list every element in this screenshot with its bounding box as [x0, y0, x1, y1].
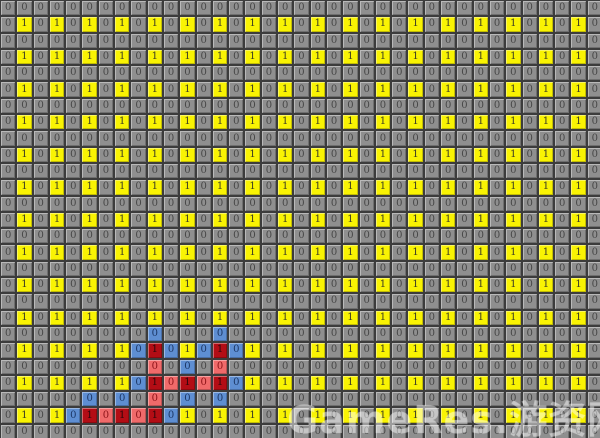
grid-cell-yellow-one[interactable]: 1 [49, 407, 65, 423]
grid-cell-yellow-one[interactable]: 1 [114, 244, 130, 260]
grid-cell-gray-zero[interactable]: 0 [212, 163, 228, 179]
grid-cell-gray-zero[interactable]: 0 [0, 0, 16, 16]
grid-cell-gray-zero[interactable]: 0 [228, 310, 244, 326]
grid-cell-gray-zero[interactable]: 0 [163, 244, 179, 260]
grid-cell-gray-zero[interactable]: 0 [538, 293, 554, 309]
grid-cell-gray-zero[interactable]: 0 [391, 49, 407, 65]
grid-cell-gray-zero[interactable]: 0 [326, 49, 342, 65]
grid-cell-gray-zero[interactable]: 0 [587, 98, 600, 114]
grid-cell-yellow-one[interactable]: 1 [16, 147, 32, 163]
grid-cell-gray-zero[interactable]: 0 [424, 359, 440, 375]
grid-cell-gray-zero[interactable]: 0 [130, 310, 146, 326]
grid-cell-gray-zero[interactable]: 0 [196, 49, 212, 65]
grid-cell-yellow-one[interactable]: 1 [212, 310, 228, 326]
grid-cell-gray-zero[interactable]: 0 [98, 261, 114, 277]
grid-cell-gray-zero[interactable]: 0 [505, 98, 521, 114]
grid-cell-gray-zero[interactable]: 0 [538, 391, 554, 407]
grid-cell-gray-zero[interactable]: 0 [391, 375, 407, 391]
grid-cell-gray-zero[interactable]: 0 [98, 16, 114, 32]
grid-cell-gray-zero[interactable]: 0 [196, 359, 212, 375]
grid-cell-gray-zero[interactable]: 0 [33, 98, 49, 114]
grid-cell-yellow-one[interactable]: 1 [277, 212, 293, 228]
grid-cell-gray-zero[interactable]: 0 [440, 424, 456, 438]
grid-cell-yellow-one[interactable]: 1 [244, 342, 260, 358]
grid-cell-gray-zero[interactable]: 0 [163, 310, 179, 326]
grid-cell-yellow-one[interactable]: 1 [473, 310, 489, 326]
grid-cell-gray-zero[interactable]: 0 [196, 228, 212, 244]
grid-cell-gray-zero[interactable]: 0 [261, 326, 277, 342]
grid-cell-gray-zero[interactable]: 0 [326, 310, 342, 326]
grid-cell-gray-zero[interactable]: 0 [391, 228, 407, 244]
grid-cell-gray-zero[interactable]: 0 [456, 49, 472, 65]
grid-cell-yellow-one[interactable]: 1 [375, 114, 391, 130]
grid-cell-gray-zero[interactable]: 0 [570, 196, 586, 212]
grid-cell-gray-zero[interactable]: 0 [440, 293, 456, 309]
grid-cell-gray-zero[interactable]: 0 [98, 114, 114, 130]
grid-cell-gray-zero[interactable]: 0 [538, 196, 554, 212]
grid-cell-gray-zero[interactable]: 0 [0, 326, 16, 342]
grid-cell-yellow-one[interactable]: 1 [179, 277, 195, 293]
grid-cell-gray-zero[interactable]: 0 [147, 98, 163, 114]
grid-cell-gray-zero[interactable]: 0 [261, 359, 277, 375]
grid-cell-yellow-one[interactable]: 1 [49, 212, 65, 228]
grid-cell-gray-zero[interactable]: 0 [554, 375, 570, 391]
grid-cell-gray-zero[interactable]: 0 [0, 130, 16, 146]
grid-cell-gray-zero[interactable]: 0 [342, 196, 358, 212]
grid-cell-yellow-one[interactable]: 1 [342, 375, 358, 391]
grid-cell-yellow-one[interactable]: 1 [310, 244, 326, 260]
grid-cell-gray-zero[interactable]: 0 [570, 130, 586, 146]
grid-cell-gray-zero[interactable]: 0 [359, 163, 375, 179]
grid-cell-gray-zero[interactable]: 0 [0, 65, 16, 81]
grid-cell-gray-zero[interactable]: 0 [130, 49, 146, 65]
grid-cell-gray-zero[interactable]: 0 [261, 65, 277, 81]
grid-cell-gray-zero[interactable]: 0 [456, 277, 472, 293]
grid-cell-yellow-one[interactable]: 1 [212, 114, 228, 130]
grid-cell-gray-zero[interactable]: 0 [587, 244, 600, 260]
grid-cell-gray-zero[interactable]: 0 [65, 179, 81, 195]
grid-cell-gray-zero[interactable]: 0 [293, 342, 309, 358]
grid-cell-gray-zero[interactable]: 0 [326, 33, 342, 49]
grid-cell-gray-zero[interactable]: 0 [163, 261, 179, 277]
grid-cell-gray-zero[interactable]: 0 [293, 293, 309, 309]
grid-cell-gray-zero[interactable]: 0 [0, 342, 16, 358]
grid-cell-yellow-one[interactable]: 1 [570, 49, 586, 65]
grid-cell-red-light-zero[interactable]: 0 [212, 359, 228, 375]
grid-cell-gray-zero[interactable]: 0 [424, 424, 440, 438]
grid-cell-gray-zero[interactable]: 0 [65, 81, 81, 97]
grid-cell-gray-zero[interactable]: 0 [424, 310, 440, 326]
grid-cell-gray-zero[interactable]: 0 [326, 391, 342, 407]
grid-cell-gray-zero[interactable]: 0 [196, 293, 212, 309]
grid-cell-gray-zero[interactable]: 0 [33, 261, 49, 277]
grid-cell-gray-zero[interactable]: 0 [130, 326, 146, 342]
grid-cell-yellow-one[interactable]: 1 [16, 407, 32, 423]
grid-cell-gray-zero[interactable]: 0 [473, 65, 489, 81]
grid-cell-gray-zero[interactable]: 0 [196, 81, 212, 97]
grid-cell-yellow-one[interactable]: 1 [570, 16, 586, 32]
grid-cell-gray-zero[interactable]: 0 [587, 228, 600, 244]
grid-cell-gray-zero[interactable]: 0 [587, 326, 600, 342]
grid-cell-blue-zero[interactable]: 0 [196, 342, 212, 358]
grid-cell-yellow-one[interactable]: 1 [277, 147, 293, 163]
grid-cell-yellow-one[interactable]: 1 [440, 407, 456, 423]
grid-cell-gray-zero[interactable]: 0 [522, 391, 538, 407]
grid-cell-gray-zero[interactable]: 0 [391, 261, 407, 277]
grid-cell-gray-zero[interactable]: 0 [456, 342, 472, 358]
grid-cell-red-dark-one[interactable]: 1 [147, 375, 163, 391]
grid-cell-gray-zero[interactable]: 0 [375, 293, 391, 309]
grid-cell-yellow-one[interactable]: 1 [440, 114, 456, 130]
grid-cell-gray-zero[interactable]: 0 [130, 424, 146, 438]
grid-cell-gray-zero[interactable]: 0 [244, 0, 260, 16]
grid-cell-gray-zero[interactable]: 0 [359, 375, 375, 391]
grid-cell-gray-zero[interactable]: 0 [522, 261, 538, 277]
grid-cell-gray-zero[interactable]: 0 [489, 163, 505, 179]
grid-cell-gray-zero[interactable]: 0 [473, 0, 489, 16]
grid-cell-gray-zero[interactable]: 0 [33, 359, 49, 375]
grid-cell-yellow-one[interactable]: 1 [538, 16, 554, 32]
grid-cell-gray-zero[interactable]: 0 [391, 277, 407, 293]
grid-cell-gray-zero[interactable]: 0 [489, 147, 505, 163]
grid-cell-gray-zero[interactable]: 0 [163, 196, 179, 212]
grid-cell-yellow-one[interactable]: 1 [277, 49, 293, 65]
grid-cell-yellow-one[interactable]: 1 [16, 16, 32, 32]
grid-cell-gray-zero[interactable]: 0 [293, 261, 309, 277]
grid-cell-gray-zero[interactable]: 0 [326, 98, 342, 114]
grid-cell-yellow-one[interactable]: 1 [440, 81, 456, 97]
grid-cell-gray-zero[interactable]: 0 [391, 310, 407, 326]
grid-cell-yellow-one[interactable]: 1 [375, 342, 391, 358]
grid-cell-gray-zero[interactable]: 0 [228, 196, 244, 212]
grid-cell-yellow-one[interactable]: 1 [244, 212, 260, 228]
grid-cell-yellow-one[interactable]: 1 [179, 407, 195, 423]
grid-cell-gray-zero[interactable]: 0 [554, 342, 570, 358]
grid-cell-gray-zero[interactable]: 0 [228, 391, 244, 407]
grid-cell-gray-zero[interactable]: 0 [163, 49, 179, 65]
grid-cell-gray-zero[interactable]: 0 [212, 196, 228, 212]
grid-cell-gray-zero[interactable]: 0 [261, 130, 277, 146]
grid-cell-gray-zero[interactable]: 0 [473, 391, 489, 407]
grid-cell-gray-zero[interactable]: 0 [261, 391, 277, 407]
grid-cell-gray-zero[interactable]: 0 [489, 81, 505, 97]
grid-cell-gray-zero[interactable]: 0 [130, 114, 146, 130]
grid-cell-gray-zero[interactable]: 0 [505, 0, 521, 16]
grid-cell-gray-zero[interactable]: 0 [326, 196, 342, 212]
grid-cell-gray-zero[interactable]: 0 [163, 212, 179, 228]
grid-cell-gray-zero[interactable]: 0 [212, 65, 228, 81]
grid-cell-gray-zero[interactable]: 0 [16, 65, 32, 81]
grid-cell-yellow-one[interactable]: 1 [440, 375, 456, 391]
grid-cell-gray-zero[interactable]: 0 [33, 310, 49, 326]
grid-cell-gray-zero[interactable]: 0 [473, 326, 489, 342]
grid-cell-gray-zero[interactable]: 0 [505, 65, 521, 81]
grid-cell-gray-zero[interactable]: 0 [473, 98, 489, 114]
grid-cell-gray-zero[interactable]: 0 [0, 293, 16, 309]
grid-cell-yellow-one[interactable]: 1 [342, 179, 358, 195]
grid-cell-yellow-one[interactable]: 1 [473, 212, 489, 228]
grid-cell-gray-zero[interactable]: 0 [554, 163, 570, 179]
grid-cell-gray-zero[interactable]: 0 [98, 147, 114, 163]
grid-cell-yellow-one[interactable]: 1 [407, 407, 423, 423]
grid-cell-gray-zero[interactable]: 0 [326, 147, 342, 163]
grid-cell-gray-zero[interactable]: 0 [424, 244, 440, 260]
grid-cell-gray-zero[interactable]: 0 [326, 359, 342, 375]
grid-cell-gray-zero[interactable]: 0 [163, 293, 179, 309]
grid-cell-gray-zero[interactable]: 0 [554, 196, 570, 212]
grid-cell-gray-zero[interactable]: 0 [538, 33, 554, 49]
grid-cell-yellow-one[interactable]: 1 [310, 114, 326, 130]
grid-cell-gray-zero[interactable]: 0 [33, 424, 49, 438]
grid-cell-gray-zero[interactable]: 0 [293, 196, 309, 212]
grid-cell-gray-zero[interactable]: 0 [326, 65, 342, 81]
grid-cell-yellow-one[interactable]: 1 [244, 16, 260, 32]
grid-cell-gray-zero[interactable]: 0 [489, 293, 505, 309]
grid-cell-gray-zero[interactable]: 0 [456, 81, 472, 97]
grid-cell-gray-zero[interactable]: 0 [98, 310, 114, 326]
grid-cell-yellow-one[interactable]: 1 [147, 212, 163, 228]
grid-cell-gray-zero[interactable]: 0 [49, 0, 65, 16]
grid-cell-yellow-one[interactable]: 1 [375, 212, 391, 228]
grid-cell-gray-zero[interactable]: 0 [505, 228, 521, 244]
grid-cell-gray-zero[interactable]: 0 [16, 196, 32, 212]
grid-cell-gray-zero[interactable]: 0 [456, 359, 472, 375]
grid-cell-yellow-one[interactable]: 1 [342, 342, 358, 358]
grid-cell-gray-zero[interactable]: 0 [522, 16, 538, 32]
grid-cell-gray-zero[interactable]: 0 [196, 65, 212, 81]
grid-cell-gray-zero[interactable]: 0 [407, 424, 423, 438]
grid-cell-blue-zero[interactable]: 0 [228, 342, 244, 358]
grid-cell-gray-zero[interactable]: 0 [212, 33, 228, 49]
grid-cell-gray-zero[interactable]: 0 [342, 326, 358, 342]
grid-cell-gray-zero[interactable]: 0 [489, 407, 505, 423]
grid-cell-gray-zero[interactable]: 0 [0, 375, 16, 391]
grid-cell-gray-zero[interactable]: 0 [375, 98, 391, 114]
grid-cell-gray-zero[interactable]: 0 [98, 359, 114, 375]
grid-cell-gray-zero[interactable]: 0 [554, 0, 570, 16]
grid-cell-gray-zero[interactable]: 0 [310, 326, 326, 342]
grid-cell-gray-zero[interactable]: 0 [65, 147, 81, 163]
grid-cell-gray-zero[interactable]: 0 [587, 261, 600, 277]
grid-cell-gray-zero[interactable]: 0 [163, 424, 179, 438]
grid-cell-gray-zero[interactable]: 0 [489, 0, 505, 16]
grid-cell-gray-zero[interactable]: 0 [130, 277, 146, 293]
grid-cell-yellow-one[interactable]: 1 [342, 114, 358, 130]
grid-cell-yellow-one[interactable]: 1 [114, 179, 130, 195]
grid-cell-gray-zero[interactable]: 0 [538, 65, 554, 81]
grid-cell-gray-zero[interactable]: 0 [147, 228, 163, 244]
grid-cell-gray-zero[interactable]: 0 [570, 228, 586, 244]
grid-cell-gray-zero[interactable]: 0 [228, 326, 244, 342]
grid-cell-yellow-one[interactable]: 1 [570, 212, 586, 228]
grid-cell-gray-zero[interactable]: 0 [0, 277, 16, 293]
grid-cell-gray-zero[interactable]: 0 [130, 81, 146, 97]
grid-cell-gray-zero[interactable]: 0 [130, 65, 146, 81]
grid-cell-gray-zero[interactable]: 0 [196, 16, 212, 32]
grid-cell-gray-zero[interactable]: 0 [456, 375, 472, 391]
grid-cell-yellow-one[interactable]: 1 [375, 375, 391, 391]
grid-cell-gray-zero[interactable]: 0 [505, 130, 521, 146]
grid-cell-gray-zero[interactable]: 0 [244, 196, 260, 212]
grid-cell-gray-zero[interactable]: 0 [554, 326, 570, 342]
grid-cell-gray-zero[interactable]: 0 [359, 244, 375, 260]
grid-cell-yellow-one[interactable]: 1 [114, 342, 130, 358]
grid-cell-gray-zero[interactable]: 0 [391, 244, 407, 260]
grid-cell-yellow-one[interactable]: 1 [114, 212, 130, 228]
grid-cell-gray-zero[interactable]: 0 [505, 163, 521, 179]
grid-cell-gray-zero[interactable]: 0 [326, 326, 342, 342]
grid-cell-yellow-one[interactable]: 1 [473, 407, 489, 423]
grid-cell-gray-zero[interactable]: 0 [587, 391, 600, 407]
grid-cell-gray-zero[interactable]: 0 [147, 65, 163, 81]
grid-cell-gray-zero[interactable]: 0 [98, 277, 114, 293]
grid-cell-red-dark-one[interactable]: 1 [212, 375, 228, 391]
grid-cell-gray-zero[interactable]: 0 [554, 293, 570, 309]
grid-cell-gray-zero[interactable]: 0 [359, 196, 375, 212]
grid-cell-gray-zero[interactable]: 0 [391, 196, 407, 212]
grid-cell-gray-zero[interactable]: 0 [570, 424, 586, 438]
grid-cell-gray-zero[interactable]: 0 [293, 326, 309, 342]
grid-cell-gray-zero[interactable]: 0 [98, 391, 114, 407]
grid-cell-gray-zero[interactable]: 0 [424, 179, 440, 195]
grid-cell-gray-zero[interactable]: 0 [293, 16, 309, 32]
grid-cell-gray-zero[interactable]: 0 [0, 359, 16, 375]
grid-cell-gray-zero[interactable]: 0 [522, 342, 538, 358]
grid-cell-gray-zero[interactable]: 0 [522, 179, 538, 195]
grid-cell-gray-zero[interactable]: 0 [228, 33, 244, 49]
grid-cell-gray-zero[interactable]: 0 [522, 310, 538, 326]
grid-cell-yellow-one[interactable]: 1 [179, 179, 195, 195]
grid-cell-gray-zero[interactable]: 0 [65, 326, 81, 342]
grid-cell-red-dark-one[interactable]: 1 [147, 342, 163, 358]
grid-cell-gray-zero[interactable]: 0 [326, 277, 342, 293]
grid-cell-gray-zero[interactable]: 0 [98, 342, 114, 358]
grid-cell-gray-zero[interactable]: 0 [179, 261, 195, 277]
grid-cell-gray-zero[interactable]: 0 [456, 424, 472, 438]
grid-cell-gray-zero[interactable]: 0 [147, 0, 163, 16]
grid-cell-gray-zero[interactable]: 0 [244, 424, 260, 438]
grid-cell-yellow-one[interactable]: 1 [49, 114, 65, 130]
grid-cell-gray-zero[interactable]: 0 [522, 65, 538, 81]
grid-cell-gray-zero[interactable]: 0 [114, 0, 130, 16]
grid-cell-gray-zero[interactable]: 0 [0, 147, 16, 163]
grid-cell-yellow-one[interactable]: 1 [16, 342, 32, 358]
grid-cell-gray-zero[interactable]: 0 [407, 293, 423, 309]
grid-cell-gray-zero[interactable]: 0 [196, 179, 212, 195]
grid-cell-gray-zero[interactable]: 0 [81, 293, 97, 309]
grid-cell-gray-zero[interactable]: 0 [65, 196, 81, 212]
grid-cell-gray-zero[interactable]: 0 [424, 342, 440, 358]
grid-cell-gray-zero[interactable]: 0 [359, 49, 375, 65]
grid-cell-blue-zero[interactable]: 0 [179, 391, 195, 407]
grid-cell-gray-zero[interactable]: 0 [456, 65, 472, 81]
grid-cell-yellow-one[interactable]: 1 [342, 49, 358, 65]
grid-cell-gray-zero[interactable]: 0 [16, 391, 32, 407]
grid-cell-gray-zero[interactable]: 0 [98, 98, 114, 114]
grid-cell-gray-zero[interactable]: 0 [228, 65, 244, 81]
grid-cell-gray-zero[interactable]: 0 [65, 293, 81, 309]
grid-cell-gray-zero[interactable]: 0 [522, 147, 538, 163]
grid-cell-gray-zero[interactable]: 0 [261, 293, 277, 309]
grid-cell-yellow-one[interactable]: 1 [473, 114, 489, 130]
grid-cell-gray-zero[interactable]: 0 [310, 163, 326, 179]
grid-cell-gray-zero[interactable]: 0 [359, 98, 375, 114]
grid-cell-gray-zero[interactable]: 0 [114, 163, 130, 179]
grid-cell-yellow-one[interactable]: 1 [49, 375, 65, 391]
grid-cell-yellow-one[interactable]: 1 [49, 277, 65, 293]
grid-cell-gray-zero[interactable]: 0 [277, 65, 293, 81]
grid-cell-gray-zero[interactable]: 0 [196, 244, 212, 260]
grid-cell-gray-zero[interactable]: 0 [424, 212, 440, 228]
grid-cell-yellow-one[interactable]: 1 [473, 375, 489, 391]
grid-cell-gray-zero[interactable]: 0 [228, 163, 244, 179]
grid-cell-gray-zero[interactable]: 0 [228, 228, 244, 244]
grid-cell-gray-zero[interactable]: 0 [522, 196, 538, 212]
grid-cell-gray-zero[interactable]: 0 [391, 342, 407, 358]
grid-cell-gray-zero[interactable]: 0 [391, 359, 407, 375]
grid-cell-yellow-one[interactable]: 1 [473, 147, 489, 163]
grid-cell-gray-zero[interactable]: 0 [489, 33, 505, 49]
grid-cell-red-light-zero[interactable]: 0 [196, 375, 212, 391]
grid-cell-gray-zero[interactable]: 0 [570, 391, 586, 407]
grid-cell-gray-zero[interactable]: 0 [81, 0, 97, 16]
grid-cell-gray-zero[interactable]: 0 [49, 261, 65, 277]
grid-cell-yellow-one[interactable]: 1 [16, 179, 32, 195]
grid-cell-gray-zero[interactable]: 0 [228, 407, 244, 423]
grid-cell-gray-zero[interactable]: 0 [261, 0, 277, 16]
grid-cell-yellow-one[interactable]: 1 [179, 212, 195, 228]
grid-cell-gray-zero[interactable]: 0 [342, 424, 358, 438]
grid-cell-gray-zero[interactable]: 0 [342, 0, 358, 16]
grid-cell-yellow-one[interactable]: 1 [147, 16, 163, 32]
grid-cell-yellow-one[interactable]: 1 [114, 114, 130, 130]
grid-cell-gray-zero[interactable]: 0 [293, 163, 309, 179]
grid-cell-gray-zero[interactable]: 0 [326, 407, 342, 423]
grid-cell-yellow-one[interactable]: 1 [473, 277, 489, 293]
grid-cell-yellow-one[interactable]: 1 [538, 244, 554, 260]
grid-cell-gray-zero[interactable]: 0 [261, 196, 277, 212]
grid-cell-gray-zero[interactable]: 0 [147, 424, 163, 438]
grid-cell-gray-zero[interactable]: 0 [375, 163, 391, 179]
grid-cell-gray-zero[interactable]: 0 [310, 424, 326, 438]
grid-cell-gray-zero[interactable]: 0 [359, 310, 375, 326]
grid-cell-yellow-one[interactable]: 1 [49, 81, 65, 97]
grid-cell-gray-zero[interactable]: 0 [0, 228, 16, 244]
grid-cell-gray-zero[interactable]: 0 [33, 163, 49, 179]
grid-cell-gray-zero[interactable]: 0 [130, 261, 146, 277]
grid-cell-yellow-one[interactable]: 1 [147, 244, 163, 260]
grid-cell-gray-zero[interactable]: 0 [424, 16, 440, 32]
grid-cell-gray-zero[interactable]: 0 [522, 244, 538, 260]
grid-cell-yellow-one[interactable]: 1 [81, 81, 97, 97]
grid-cell-yellow-one[interactable]: 1 [505, 49, 521, 65]
grid-cell-gray-zero[interactable]: 0 [554, 359, 570, 375]
grid-cell-yellow-one[interactable]: 1 [342, 212, 358, 228]
grid-cell-yellow-one[interactable]: 1 [375, 49, 391, 65]
grid-cell-gray-zero[interactable]: 0 [375, 196, 391, 212]
grid-cell-gray-zero[interactable]: 0 [456, 147, 472, 163]
grid-cell-gray-zero[interactable]: 0 [277, 228, 293, 244]
grid-cell-gray-zero[interactable]: 0 [342, 33, 358, 49]
grid-cell-gray-zero[interactable]: 0 [456, 326, 472, 342]
grid-cell-gray-zero[interactable]: 0 [456, 228, 472, 244]
grid-cell-yellow-one[interactable]: 1 [244, 277, 260, 293]
grid-cell-gray-zero[interactable]: 0 [0, 424, 16, 438]
grid-cell-gray-zero[interactable]: 0 [33, 244, 49, 260]
grid-cell-gray-zero[interactable]: 0 [440, 359, 456, 375]
grid-cell-gray-zero[interactable]: 0 [261, 179, 277, 195]
grid-cell-gray-zero[interactable]: 0 [244, 228, 260, 244]
